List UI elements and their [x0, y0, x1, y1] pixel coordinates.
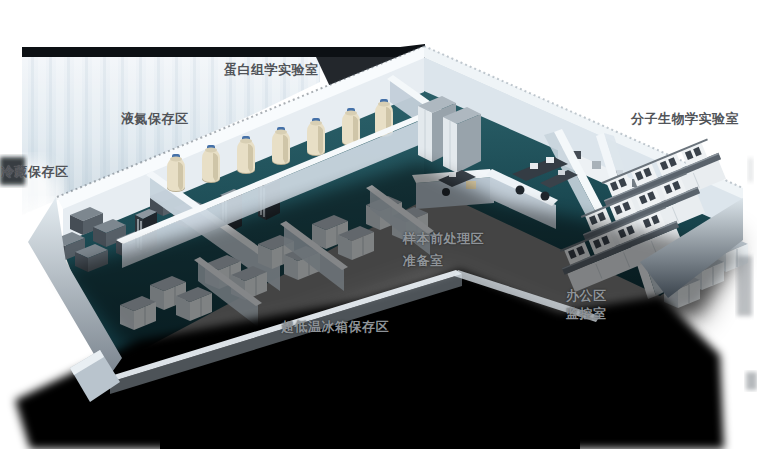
monitoring-room-label: 监控室 — [566, 305, 607, 323]
liquid-nitrogen-area-label: 液氮保存区 — [121, 110, 189, 128]
office-area-label: 办公区 — [566, 287, 607, 305]
cold-storage-area-label: 冷藏保存区 — [1, 163, 69, 181]
molecular-biology-lab-label: 分子生物学实验室 — [631, 110, 739, 128]
ult-freezer-storage-area-label: 超低温冰箱保存区 — [281, 318, 389, 336]
biobank-floorplan-figure: 蛋白组学实验室液氮保存区冷藏保存区分子生物学实验室样本前处理区准备室办公区监控室… — [0, 0, 757, 449]
preparation-room-label: 准备室 — [403, 252, 444, 270]
sample-pretreatment-area-label: 样本前处理区 — [403, 230, 484, 248]
proteomics-lab-label: 蛋白组学实验室 — [224, 61, 319, 79]
lab-3d-render — [0, 0, 757, 449]
